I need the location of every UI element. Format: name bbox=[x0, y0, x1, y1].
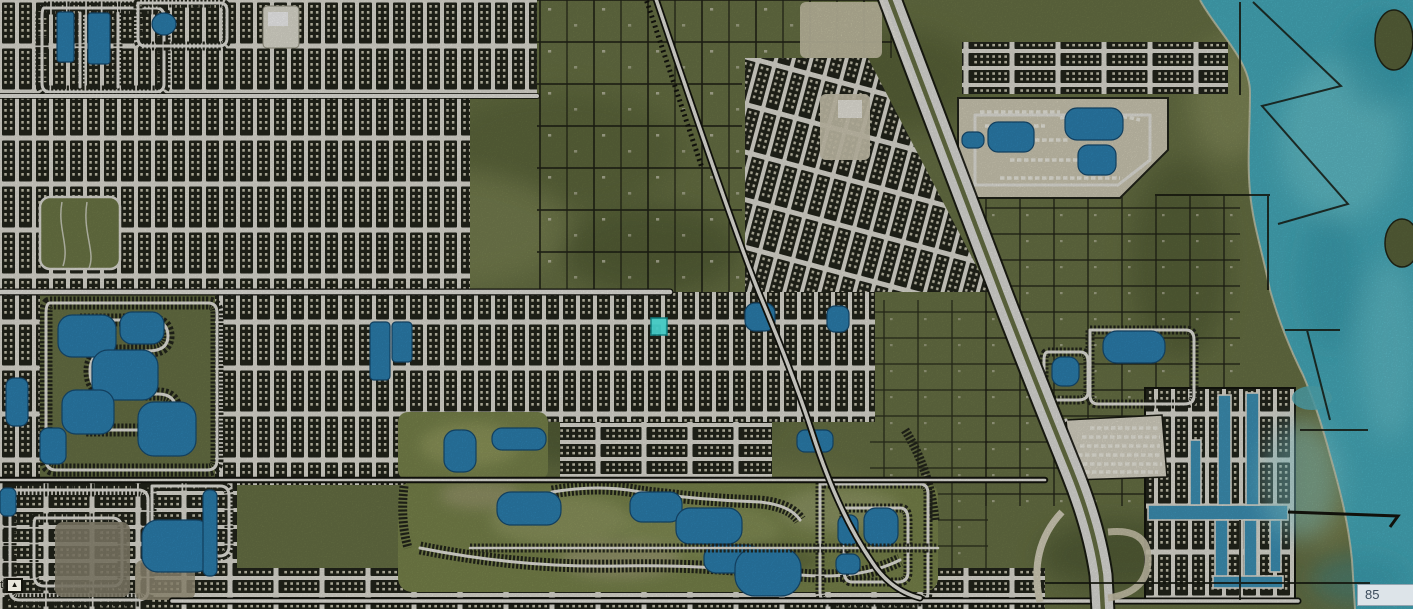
imagery-noise bbox=[0, 0, 1413, 609]
scale-unit-label: ft bbox=[0, 579, 3, 591]
map-label-text: 85 bbox=[1365, 587, 1379, 602]
selected-parcel-highlight[interactable] bbox=[651, 318, 667, 335]
map-label-box: 85 bbox=[1357, 584, 1413, 606]
north-arrow-button[interactable]: ▲ bbox=[6, 578, 23, 593]
scale-widget: ft ▲ bbox=[0, 576, 23, 594]
north-arrow-icon: ▲ bbox=[11, 581, 19, 589]
satellite-parcel-map[interactable] bbox=[0, 0, 1413, 609]
map-viewport[interactable]: ft ▲ 85 bbox=[0, 0, 1413, 609]
